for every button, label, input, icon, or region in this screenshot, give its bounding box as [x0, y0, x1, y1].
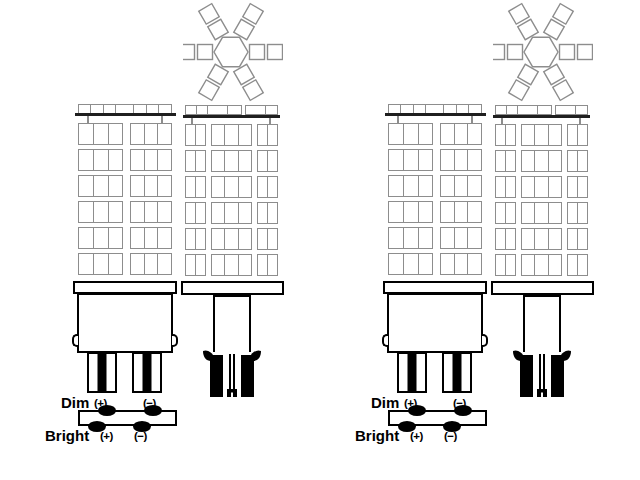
led-module: [130, 149, 172, 171]
led-cell: [496, 177, 505, 197]
led-cell: [238, 203, 251, 223]
led-cell: [131, 228, 144, 248]
led-cell: [441, 150, 454, 170]
led-row: [388, 149, 482, 171]
led-module: [257, 124, 278, 146]
led-module: [211, 202, 252, 224]
led-module: [567, 176, 588, 198]
led-cell: [212, 177, 224, 197]
led-cell: [186, 229, 195, 249]
led-cell: [157, 176, 171, 196]
star-led-square: [493, 45, 505, 60]
led-row: [185, 176, 278, 198]
led-cell: [195, 203, 205, 223]
led-module: [567, 254, 588, 276]
led-cell: [267, 125, 277, 145]
led-cell: [577, 229, 587, 249]
led-module: [521, 228, 562, 250]
led-cell: [131, 124, 144, 144]
led-cell: [467, 150, 481, 170]
led-cell: [93, 150, 108, 170]
led-cell: [522, 125, 534, 145]
top-led-edge-row: [185, 105, 278, 115]
led-cell: [267, 255, 277, 275]
led-cell: [568, 229, 577, 249]
led-cell: [568, 125, 577, 145]
led-module: [257, 228, 278, 250]
base-collar: [491, 281, 594, 295]
led-cell: [238, 177, 251, 197]
star-led-square: [199, 80, 219, 100]
led-module: [567, 124, 588, 146]
dim-label: Dim: [371, 395, 399, 410]
wedge-hook-right: [559, 350, 571, 361]
terminal-pin-dim-negative: [454, 405, 472, 416]
led-row: [78, 149, 172, 171]
led-cell: [389, 150, 403, 170]
led-row: [78, 253, 172, 275]
led-cell: [131, 202, 144, 222]
led-cell: [467, 202, 481, 222]
star-arm: [544, 4, 573, 40]
star-arm: [509, 4, 538, 40]
led-cell: [93, 254, 108, 274]
led-row: [78, 123, 172, 145]
star-led-square: [508, 45, 523, 60]
led-cell: [157, 254, 171, 274]
bright-positive-label: (+): [410, 431, 423, 443]
led-cell: [108, 228, 123, 248]
led-cell: [577, 255, 587, 275]
wedge-tip-notch: [541, 393, 543, 398]
led-bulb-front-view: [73, 100, 177, 395]
led-module: [78, 201, 123, 223]
led-module: [495, 150, 516, 172]
top-led-edge-row: [495, 105, 588, 115]
led-star-top-view: [183, 2, 283, 102]
bayonet-pin-left: [382, 334, 388, 347]
bright-positive-label: (+): [100, 431, 113, 443]
top-led-cell: [265, 105, 278, 115]
led-cell: [144, 254, 158, 274]
led-cell: [568, 203, 577, 223]
led-cell: [131, 176, 144, 196]
led-cell: [568, 151, 577, 171]
led-module: [78, 123, 123, 145]
led-cell: [157, 202, 171, 222]
top-led-cell: [517, 105, 538, 115]
led-row: [388, 253, 482, 275]
led-cell: [79, 202, 93, 222]
wedge-contact-right: [551, 355, 564, 397]
led-cell: [418, 254, 433, 274]
led-cell: [534, 229, 547, 249]
contact-stripe: [98, 354, 107, 391]
led-module: [211, 254, 252, 276]
star-center-hexagon: [524, 37, 558, 66]
top-led-cell: [245, 105, 266, 115]
led-cell: [79, 254, 93, 274]
terminal-pin-dim-negative: [144, 405, 162, 416]
led-cell: [212, 151, 224, 171]
led-cell: [568, 177, 577, 197]
led-module: [78, 253, 123, 275]
led-cell: [195, 151, 205, 171]
led-cell: [212, 125, 224, 145]
star-center-hexagon: [214, 37, 248, 66]
led-module: [521, 124, 562, 146]
contact-leg-right: [442, 352, 472, 393]
terminal-pin-dim-positive: [408, 405, 426, 416]
led-cell: [224, 203, 237, 223]
led-module: [257, 202, 278, 224]
led-module: [211, 150, 252, 172]
led-cell: [441, 176, 454, 196]
led-cell: [93, 124, 108, 144]
led-module: [388, 253, 433, 275]
bayonet-base-body: [387, 293, 483, 353]
wedge-hook-left: [203, 350, 215, 361]
led-module: [257, 150, 278, 172]
led-cell: [418, 124, 433, 144]
led-cell: [577, 177, 587, 197]
led-cell: [212, 255, 224, 275]
bright-negative-label: (−): [134, 431, 147, 443]
contact-stripe: [143, 354, 152, 391]
led-cell: [212, 203, 224, 223]
led-module: [495, 202, 516, 224]
led-module: [521, 254, 562, 276]
led-cell: [505, 229, 515, 249]
led-grid-side: [495, 124, 588, 280]
led-cell: [238, 151, 251, 171]
diagram-canvas: Dim (+) (−) Bright (+) (−): [0, 0, 640, 480]
star-led-square: [183, 45, 195, 60]
base-collar: [181, 281, 284, 295]
led-module: [521, 150, 562, 172]
led-module: [78, 175, 123, 197]
star-led-square: [509, 4, 529, 24]
led-module: [257, 254, 278, 276]
led-row: [78, 175, 172, 197]
led-row: [495, 176, 588, 198]
led-module: [495, 124, 516, 146]
contact-stripe: [408, 354, 417, 391]
led-cell: [577, 151, 587, 171]
star-arm: [544, 64, 573, 100]
led-cell: [195, 125, 205, 145]
bulb-diagram-group-1: Dim (+) (−) Bright (+) (−): [0, 0, 330, 480]
board-post-left: [87, 116, 89, 123]
led-module: [440, 123, 482, 145]
led-grid-front: [388, 123, 482, 279]
terminal-diagram: Dim (+) (−) Bright (+) (−): [355, 394, 495, 449]
led-cell: [108, 176, 123, 196]
star-led-square: [243, 80, 263, 100]
bayonet-pin-right: [172, 334, 178, 347]
wedge-contact-right: [241, 355, 254, 397]
board-post-right: [471, 116, 473, 123]
led-cell: [108, 202, 123, 222]
led-cell: [534, 255, 547, 275]
led-cell: [454, 228, 468, 248]
led-module: [521, 176, 562, 198]
led-cell: [267, 177, 277, 197]
led-row: [495, 228, 588, 250]
wedge-base: [513, 349, 571, 399]
led-cell: [195, 177, 205, 197]
led-module: [440, 175, 482, 197]
led-cell: [186, 151, 195, 171]
led-grid-side: [185, 124, 278, 280]
wedge-contact-left: [520, 355, 533, 397]
led-cell: [389, 228, 403, 248]
led-bulb-side-view: [183, 2, 283, 400]
led-cell: [108, 150, 123, 170]
board-edge-line: [183, 115, 280, 118]
led-cell: [454, 176, 468, 196]
led-module: [211, 124, 252, 146]
led-cell: [108, 254, 123, 274]
led-module: [440, 227, 482, 249]
star-led-square: [243, 4, 263, 24]
led-module: [388, 149, 433, 171]
led-cell: [548, 203, 561, 223]
terminal-pin-dim-positive: [98, 405, 116, 416]
star-arm: [509, 64, 538, 100]
led-cell: [186, 255, 195, 275]
wedge-base: [203, 349, 261, 399]
led-row: [388, 123, 482, 145]
led-module: [257, 176, 278, 198]
contact-leg-left: [397, 352, 427, 393]
led-cell: [505, 255, 515, 275]
led-row: [185, 202, 278, 224]
led-cell: [548, 177, 561, 197]
led-cell: [534, 125, 547, 145]
wedge-base-neck: [213, 295, 251, 352]
wedge-wire-left: [229, 354, 231, 392]
wedge-hook-right: [249, 350, 261, 361]
led-cell: [238, 255, 251, 275]
led-cell: [258, 229, 267, 249]
led-module: [185, 150, 206, 172]
led-cell: [403, 176, 418, 196]
contact-leg-left: [87, 352, 117, 393]
led-module: [440, 253, 482, 275]
led-cell: [224, 255, 237, 275]
top-led-cell: [207, 105, 228, 115]
led-module: [388, 123, 433, 145]
led-grid-front: [78, 123, 172, 279]
led-cell: [389, 202, 403, 222]
led-module: [211, 176, 252, 198]
wedge-wire-left: [539, 354, 541, 392]
bayonet-base-body: [77, 293, 173, 353]
led-cell: [505, 151, 515, 171]
led-cell: [496, 255, 505, 275]
led-cell: [93, 202, 108, 222]
led-cell: [144, 176, 158, 196]
led-cell: [505, 125, 515, 145]
led-cell: [144, 202, 158, 222]
led-cell: [467, 254, 481, 274]
led-row: [495, 150, 588, 172]
led-row: [495, 202, 588, 224]
led-cell: [505, 203, 515, 223]
led-cell: [79, 150, 93, 170]
led-cell: [93, 176, 108, 196]
led-module: [130, 123, 172, 145]
led-row: [495, 124, 588, 146]
star-led-square: [578, 45, 593, 60]
led-module: [388, 175, 433, 197]
star-arm: [493, 45, 523, 60]
led-cell: [224, 151, 237, 171]
bayonet-pin-right: [482, 334, 488, 347]
led-cell: [238, 229, 251, 249]
top-led-cell: [575, 105, 588, 115]
led-cell: [186, 177, 195, 197]
terminal-diagram: Dim (+) (−) Bright (+) (−): [45, 394, 185, 449]
led-cell: [522, 203, 534, 223]
led-cell: [467, 176, 481, 196]
led-cell: [522, 229, 534, 249]
star-led-square: [250, 45, 265, 60]
led-cell: [93, 228, 108, 248]
led-module: [388, 227, 433, 249]
star-arm: [199, 64, 228, 100]
led-cell: [496, 151, 505, 171]
star-arm: [560, 45, 593, 60]
led-cell: [267, 203, 277, 223]
led-cell: [157, 150, 171, 170]
led-cell: [441, 124, 454, 144]
board-edge-line: [493, 115, 590, 118]
led-cell: [454, 254, 468, 274]
top-led-cell: [227, 105, 242, 115]
top-led-cell: [537, 105, 552, 115]
led-module: [130, 253, 172, 275]
led-cell: [418, 228, 433, 248]
led-cell: [258, 151, 267, 171]
bright-negative-label: (−): [444, 431, 457, 443]
led-module: [211, 228, 252, 250]
led-cell: [496, 229, 505, 249]
led-cell: [548, 255, 561, 275]
led-row: [495, 254, 588, 276]
led-cell: [534, 203, 547, 223]
wedge-hook-left: [513, 350, 525, 361]
star-arm: [199, 4, 228, 40]
led-cell: [496, 125, 505, 145]
led-cell: [267, 151, 277, 171]
star-arm: [234, 4, 263, 40]
led-cell: [548, 125, 561, 145]
led-cell: [195, 255, 205, 275]
led-cell: [403, 228, 418, 248]
dim-label: Dim: [61, 395, 89, 410]
led-cell: [418, 202, 433, 222]
led-row: [78, 201, 172, 223]
led-module: [185, 202, 206, 224]
led-cell: [79, 124, 93, 144]
led-cell: [403, 150, 418, 170]
led-star-top-view: [493, 2, 593, 102]
led-cell: [144, 124, 158, 144]
board-post-left: [397, 116, 399, 123]
led-cell: [224, 125, 237, 145]
star-led-square: [199, 4, 219, 24]
led-cell: [441, 254, 454, 274]
led-module: [130, 175, 172, 197]
led-row: [185, 254, 278, 276]
led-cell: [258, 177, 267, 197]
wedge-contact-left: [210, 355, 223, 397]
led-cell: [418, 176, 433, 196]
star-led-square: [560, 45, 575, 60]
bright-label: Bright: [355, 428, 399, 443]
led-cell: [258, 255, 267, 275]
led-cell: [267, 229, 277, 249]
led-cell: [131, 254, 144, 274]
led-cell: [534, 177, 547, 197]
star-led-square: [268, 45, 283, 60]
led-bulb-side-view: [493, 2, 593, 400]
led-cell: [441, 228, 454, 248]
wedge-wire-right: [233, 354, 235, 392]
wedge-tip-notch: [231, 393, 233, 398]
led-cell: [157, 228, 171, 248]
led-row: [388, 175, 482, 197]
led-cell: [522, 177, 534, 197]
led-cell: [108, 124, 123, 144]
led-row: [185, 150, 278, 172]
led-module: [567, 228, 588, 250]
led-cell: [389, 124, 403, 144]
led-cell: [577, 203, 587, 223]
led-module: [388, 201, 433, 223]
led-cell: [522, 151, 534, 171]
led-cell: [467, 124, 481, 144]
top-led-cell: [555, 105, 576, 115]
bright-label: Bright: [45, 428, 89, 443]
led-row: [78, 227, 172, 249]
wedge-wire-right: [543, 354, 545, 392]
led-module: [567, 202, 588, 224]
led-module: [440, 149, 482, 171]
led-cell: [568, 255, 577, 275]
led-cell: [454, 202, 468, 222]
led-cell: [418, 150, 433, 170]
led-module: [185, 176, 206, 198]
led-cell: [534, 151, 547, 171]
led-cell: [496, 203, 505, 223]
led-cell: [505, 177, 515, 197]
contact-stripe: [453, 354, 462, 391]
led-cell: [403, 202, 418, 222]
star-led-square: [198, 45, 213, 60]
led-cell: [144, 150, 158, 170]
led-cell: [389, 176, 403, 196]
led-row: [388, 201, 482, 223]
led-module: [78, 149, 123, 171]
led-cell: [186, 203, 195, 223]
led-cell: [467, 228, 481, 248]
led-cell: [212, 229, 224, 249]
led-cell: [224, 177, 237, 197]
led-row: [185, 124, 278, 146]
